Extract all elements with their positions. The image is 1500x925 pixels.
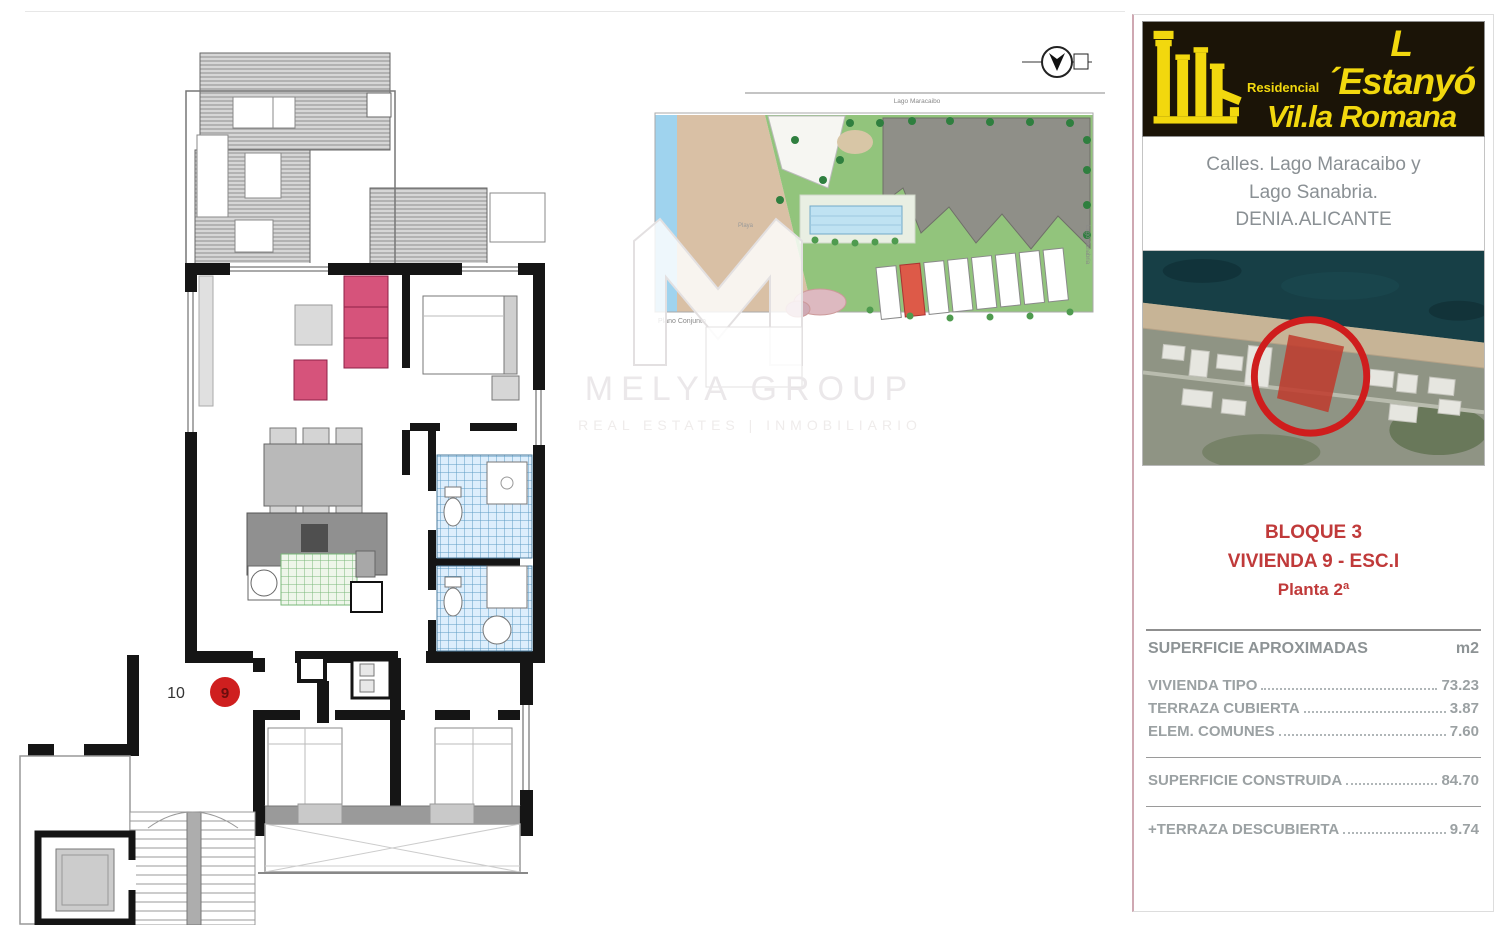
table-extra-row: +TERRAZA DESCUBIERTA 9.74 <box>1146 806 1481 841</box>
pool <box>800 195 915 243</box>
address-line1: Calles. Lago Maracaibo y <box>1147 151 1480 179</box>
dotted-leader <box>1261 688 1437 690</box>
surface-table: SUPERFICIE APROXIMADAS m2 VIVIENDA TIPO … <box>1146 629 1481 841</box>
row-value: 73.23 <box>1441 677 1479 694</box>
address-line2: Lago Sanabria. <box>1147 179 1480 207</box>
unit-9-number: 9 <box>221 685 229 702</box>
surface-header-unit: m2 <box>1456 640 1479 658</box>
extra-value: 9.74 <box>1450 821 1479 838</box>
aerial-photo-image <box>1143 251 1484 465</box>
bedroom-main <box>423 296 519 400</box>
row-label: TERRAZA CUBIERTA <box>1148 700 1300 717</box>
living-room-furniture <box>199 276 388 522</box>
dotted-leader <box>1279 734 1446 736</box>
row-label: VIVIENDA TIPO <box>1148 677 1257 694</box>
roman-columns-icon <box>1151 29 1247 129</box>
dotted-leader <box>1343 832 1446 834</box>
street-top-label: Lago Maracaibo <box>894 98 941 105</box>
dotted-leader <box>1346 783 1437 785</box>
bathrooms <box>437 455 532 651</box>
table-row: TERRAZA CUBIERTA 3.87 <box>1146 697 1481 720</box>
unit-title-block: BLOQUE 3 VIVIENDA 9 - ESC.I Planta 2ª <box>1134 518 1493 603</box>
address-block: Calles. Lago Maracaibo y Lago Sanabria. … <box>1142 137 1485 251</box>
unit-floor: Planta 2ª <box>1134 577 1493 603</box>
elevator <box>38 834 136 922</box>
table-row: VIVIENDA TIPO 73.23 <box>1146 674 1481 697</box>
brand-line1: L´Estanyó <box>1326 25 1476 100</box>
unit-dwelling: VIVIENDA 9 - ESC.I <box>1134 547 1493 576</box>
total-label: SUPERFICIE CONSTRUIDA <box>1148 772 1342 789</box>
total-value: 84.70 <box>1441 772 1479 789</box>
surface-table-header: SUPERFICIE APROXIMADAS m2 <box>1146 629 1481 674</box>
armchair <box>294 360 327 400</box>
unit-block: BLOQUE 3 <box>1134 518 1493 547</box>
table-total-row: SUPERFICIE CONSTRUIDA 84.70 <box>1146 757 1481 792</box>
row-value: 7.60 <box>1450 723 1479 740</box>
brand-logo: Residencial L´Estanyó Vil.la Romana <box>1142 21 1485 137</box>
roof-terrace <box>186 53 545 272</box>
aerial-photo <box>1142 251 1485 466</box>
north-arrow-icon <box>1022 47 1092 77</box>
surface-header-label: SUPERFICIE APROXIMADAS <box>1148 640 1368 658</box>
street-right-label: Lago Sanabria <box>1084 225 1090 265</box>
unit-10-label: 10 <box>167 685 185 702</box>
brand-name: Residencial L´Estanyó Vil.la Romana <box>1247 25 1476 132</box>
apartment-floor-plan: 10 9 <box>0 0 660 925</box>
row-value: 3.87 <box>1450 700 1479 717</box>
extra-label: +TERRAZA DESCUBIERTA <box>1148 821 1339 838</box>
kitchen <box>247 513 387 612</box>
dining-set <box>264 428 362 522</box>
row-label: ELEM. COMUNES <box>1148 723 1275 740</box>
sofa <box>344 276 388 368</box>
beach-label: Playa <box>738 223 754 229</box>
brand-pre: Residencial <box>1247 81 1319 101</box>
staircase <box>130 812 255 925</box>
site-plan-caption: Plano Conjunto <box>658 318 706 325</box>
brand-line2: Vil.la Romana <box>1247 101 1476 133</box>
site-plan: Lago Maracaibo <box>650 20 1120 340</box>
lower-bedrooms <box>253 658 533 873</box>
info-panel: Residencial L´Estanyó Vil.la Romana Call… <box>1132 14 1494 912</box>
table-row: ELEM. COMUNES 7.60 <box>1146 720 1481 743</box>
address-line3: DENIA.ALICANTE <box>1147 206 1480 234</box>
brochure-page: 10 9 <box>0 0 1500 925</box>
dotted-leader <box>1304 711 1446 713</box>
